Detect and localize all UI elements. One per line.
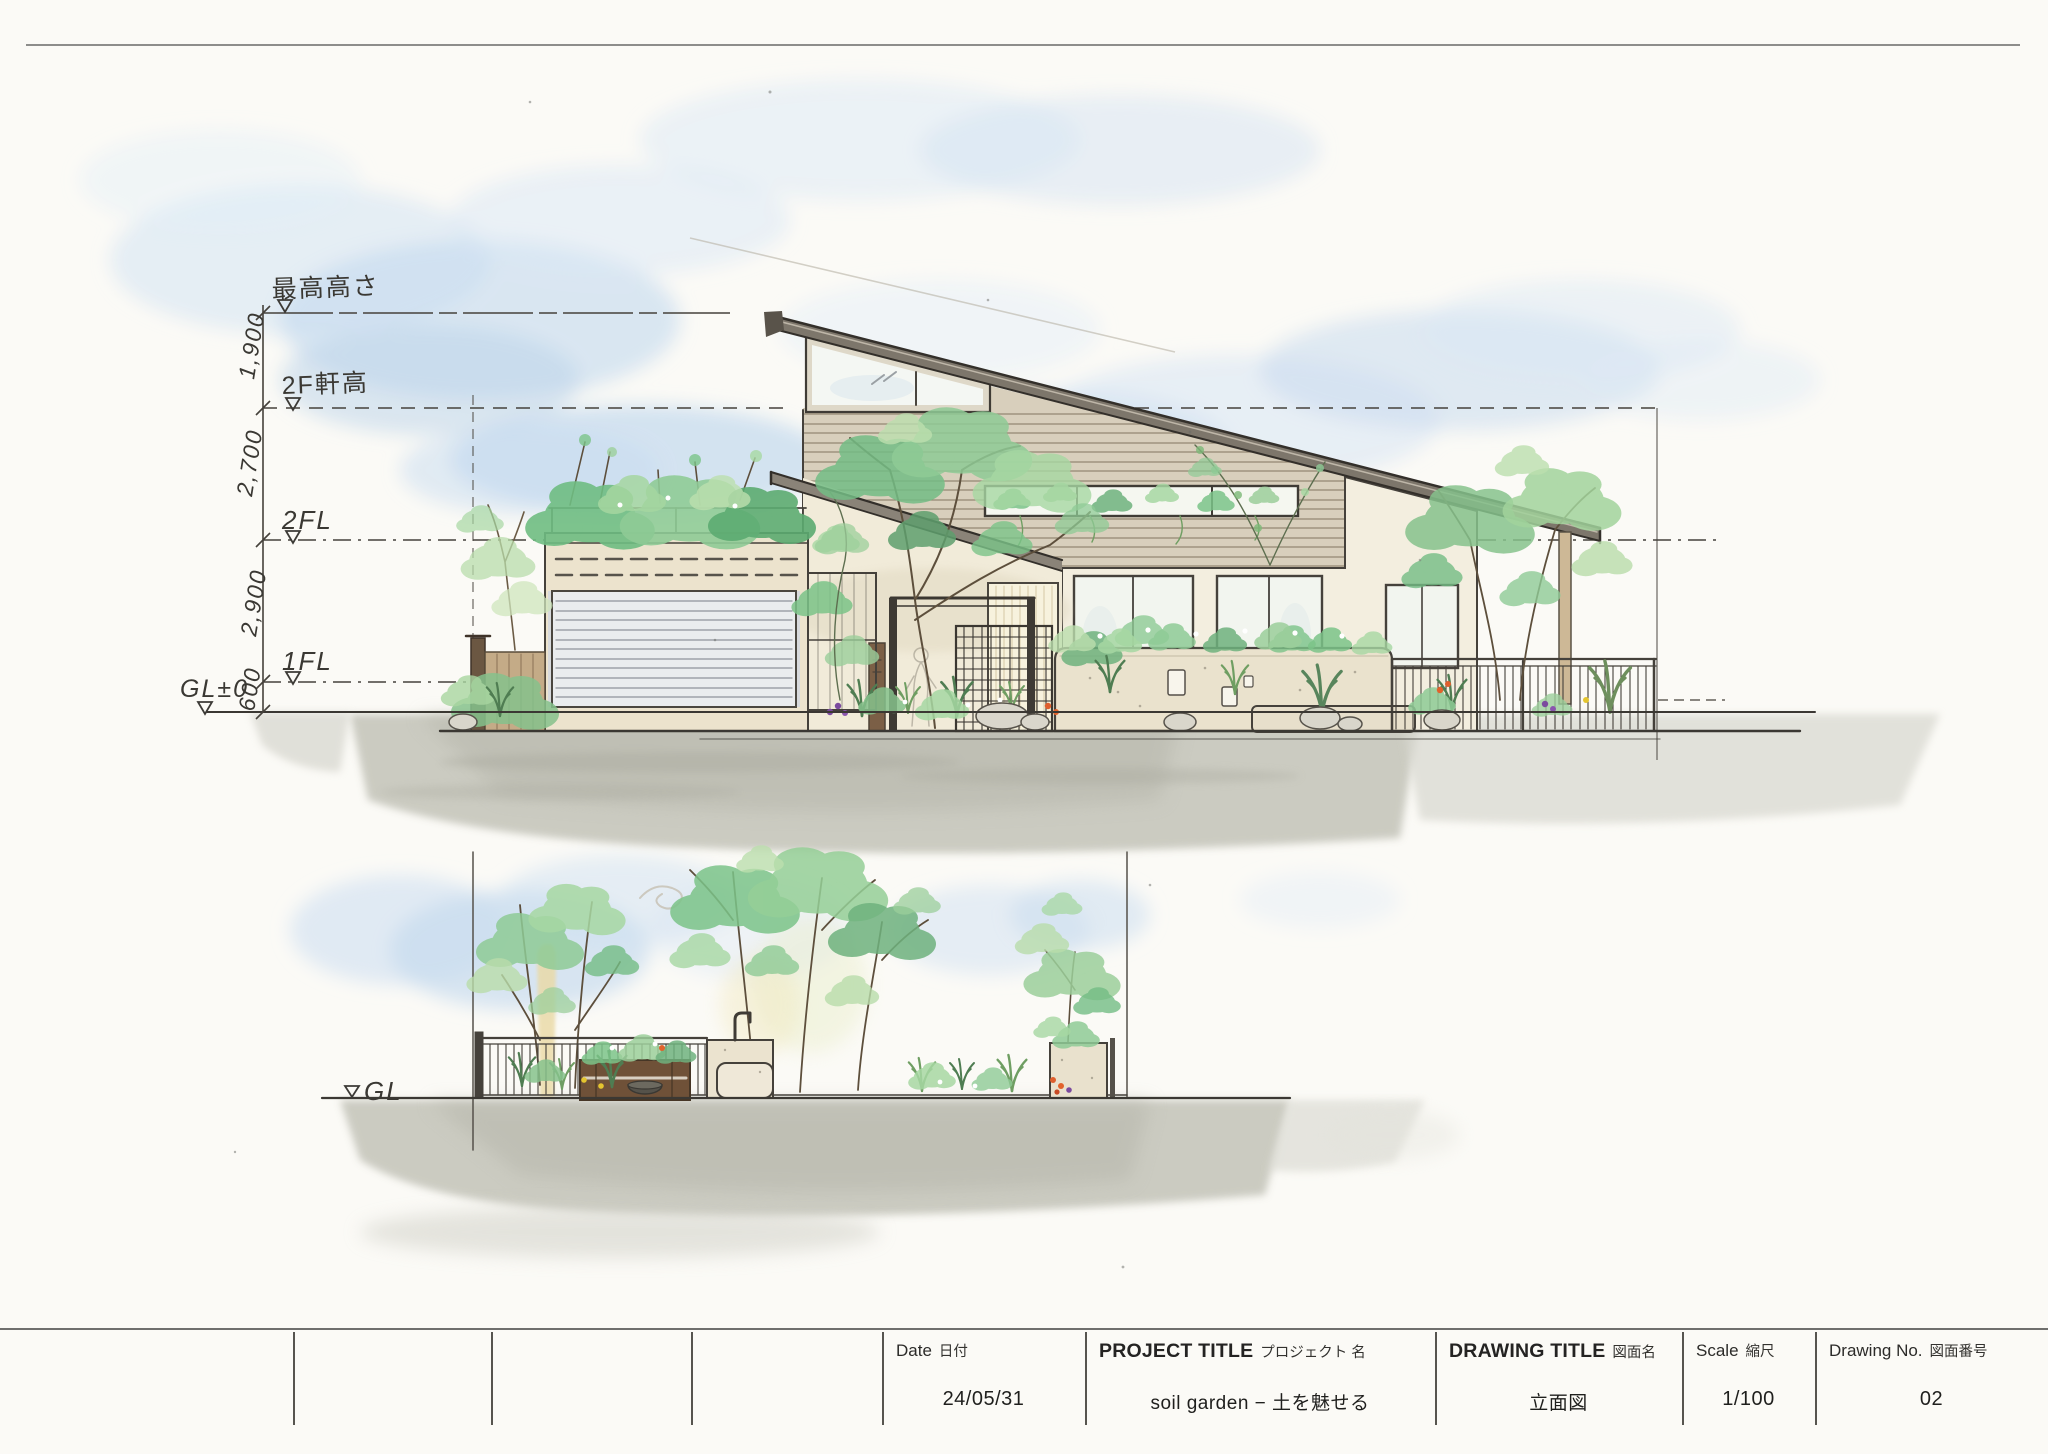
water-basin-bowl: [628, 1081, 662, 1094]
fl2-label: 2FL: [281, 505, 333, 535]
wall-niche: [1168, 670, 1185, 695]
roller-shutter: [548, 591, 800, 707]
titleblock-divider: [1815, 1332, 1817, 1425]
eave-height-label: 2F軒高: [281, 369, 369, 400]
title-block: Date日付 24/05/31 PROJECT TITLEプロジェクト 名 so…: [0, 1328, 2048, 1451]
drawing-no-label: Drawing No.図面番号: [1829, 1340, 1988, 1361]
titleblock-divider: [691, 1332, 693, 1425]
titleblock-divider: [1682, 1332, 1684, 1425]
drawing-no-value: 02: [1815, 1388, 2048, 1411]
scale-value: 1/100: [1682, 1388, 1815, 1411]
date-label: Date日付: [896, 1340, 968, 1361]
titleblock-divider: [293, 1332, 295, 1425]
window-3: [1386, 585, 1458, 668]
project-title-label: PROJECT TITLEプロジェクト 名: [1099, 1340, 1366, 1363]
drawing-title-label: DRAWING TITLE図面名: [1449, 1340, 1656, 1363]
wood-planter-bench: [580, 1060, 690, 1100]
max-height-label: 最高高さ: [271, 272, 380, 304]
titleblock-divider: [491, 1332, 493, 1425]
elevation-artwork: 最高高さ 2F軒高 2FL 1FL GL±0 1,900 2,700 2,900…: [0, 0, 2048, 1449]
fence-end-post: [1110, 1038, 1115, 1098]
drawing-title-value: 立面図: [1435, 1388, 1682, 1415]
fl1-label: 1FL: [282, 646, 333, 676]
sheet-top-rule: [26, 44, 2020, 46]
lower-gl-label: GL: [364, 1076, 403, 1106]
scale-label: Scale縮尺: [1696, 1340, 1775, 1361]
date-value: 24/05/31: [882, 1388, 1085, 1411]
wall-niche: [1244, 676, 1253, 687]
eave-post: [1559, 532, 1571, 704]
titleblock-divider: [882, 1332, 884, 1425]
project-title-value: soil garden − 土を魅せる: [1085, 1388, 1435, 1415]
